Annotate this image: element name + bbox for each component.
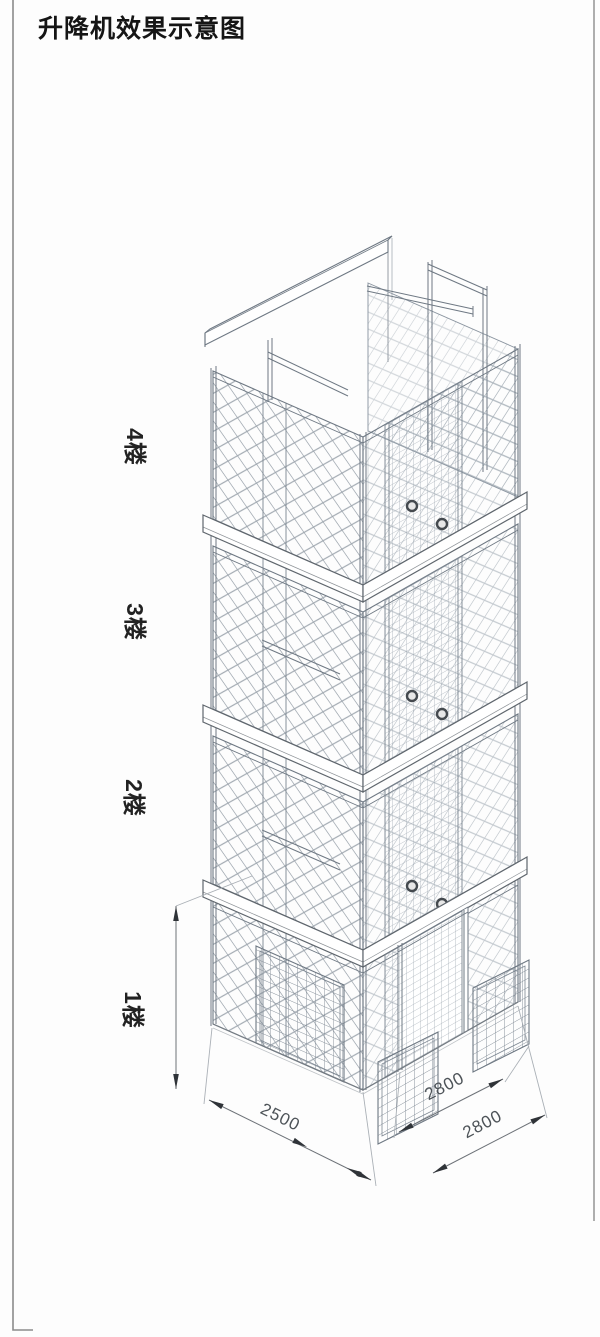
elevator-schematic-svg: 升降机效果示意图 (0, 0, 600, 1337)
floor-label-3f: 3楼 (122, 603, 148, 641)
page-title: 升降机效果示意图 (38, 14, 246, 43)
floor-label-1f: 1楼 (120, 991, 146, 1029)
scanned-drawing-page: 升降机效果示意图 (0, 0, 600, 1337)
floor-label-4f: 4楼 (122, 428, 148, 466)
cage-column (385, 381, 462, 938)
floor-label-2f: 2楼 (121, 779, 147, 817)
